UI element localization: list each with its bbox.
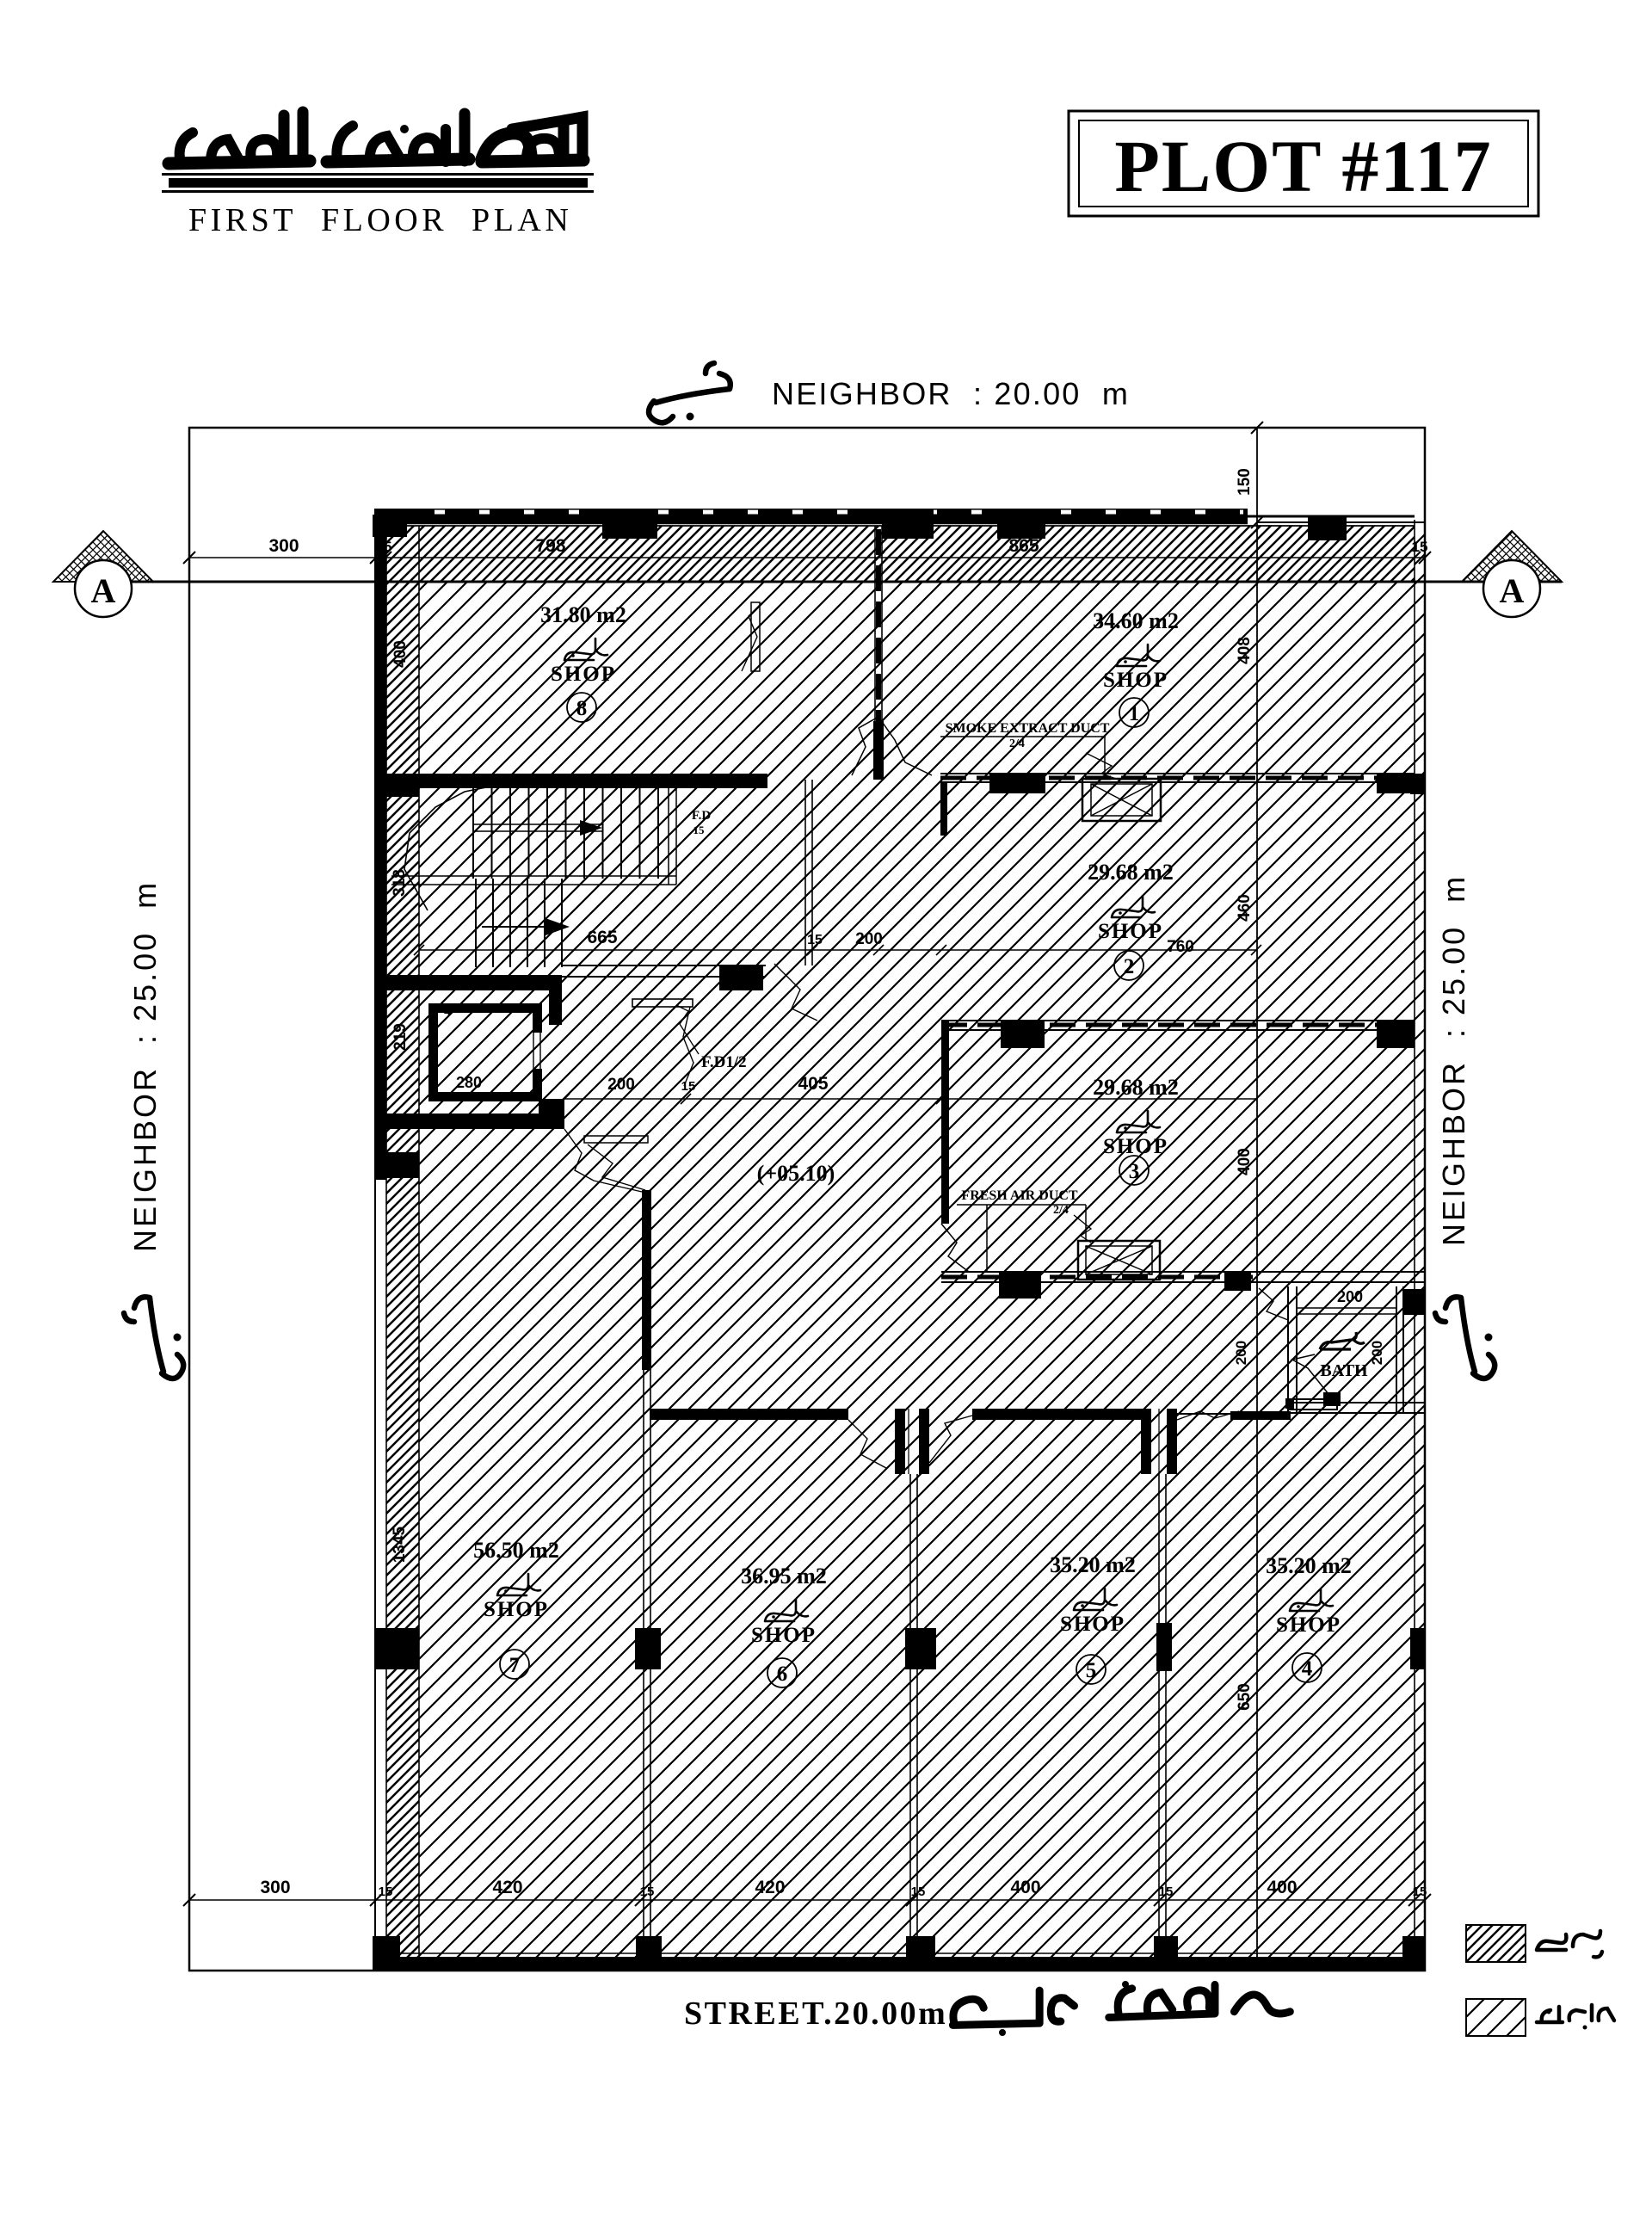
- svg-text:5: 5: [1086, 1659, 1097, 1682]
- svg-text:219: 219: [391, 1023, 410, 1051]
- svg-text:15: 15: [1413, 1885, 1427, 1899]
- svg-text:4: 4: [444, 1004, 451, 1018]
- svg-text:34.60 m2: 34.60 m2: [1093, 608, 1179, 633]
- svg-text:420: 420: [492, 1878, 522, 1897]
- svg-text:F.D: F.D: [692, 809, 712, 823]
- svg-text:200: 200: [1369, 1341, 1385, 1365]
- svg-text:865: 865: [1008, 536, 1039, 556]
- svg-text:300: 300: [260, 1878, 290, 1897]
- svg-text:300: 300: [268, 536, 299, 556]
- svg-text:35.20 m2: 35.20 m2: [1050, 1552, 1136, 1577]
- svg-text:36.95 m2: 36.95 m2: [741, 1564, 827, 1589]
- svg-text:200: 200: [1233, 1341, 1249, 1365]
- svg-text:SHOP: SHOP: [1276, 1613, 1341, 1637]
- svg-text:A: A: [91, 571, 116, 610]
- svg-text:1345: 1345: [391, 1526, 409, 1563]
- svg-text:FIRST FLOOR PLAN: FIRST FLOOR PLAN: [188, 202, 572, 238]
- svg-text:200: 200: [1337, 1288, 1363, 1305]
- svg-text:400: 400: [1010, 1878, 1040, 1897]
- svg-text:420: 420: [755, 1878, 785, 1897]
- svg-text:3: 3: [1129, 1160, 1140, 1183]
- svg-text:SHOP: SHOP: [1060, 1613, 1125, 1636]
- svg-text:2/4: 2/4: [1053, 1204, 1069, 1217]
- svg-text:2/4: 2/4: [1009, 737, 1025, 750]
- svg-text:NEIGHBOR : 20.00 m: NEIGHBOR : 20.00 m: [772, 376, 1130, 411]
- svg-text:SMOKE EXTRACT DUCT: SMOKE EXTRACT DUCT: [946, 721, 1110, 736]
- svg-text:29.68 m2: 29.68 m2: [1088, 860, 1174, 885]
- svg-text:6: 6: [777, 1663, 788, 1686]
- svg-text:SHOP: SHOP: [1098, 920, 1163, 943]
- svg-text:400: 400: [391, 640, 410, 668]
- svg-text:400: 400: [1267, 1878, 1297, 1897]
- svg-text:460: 460: [1236, 894, 1254, 922]
- svg-text:15: 15: [1159, 1885, 1174, 1899]
- svg-text:4: 4: [1302, 1657, 1313, 1681]
- svg-text:BATH: BATH: [1320, 1361, 1368, 1380]
- svg-text:8: 8: [576, 697, 588, 720]
- svg-text:280: 280: [456, 1074, 482, 1091]
- svg-text:STREET.20.00m: STREET.20.00m: [684, 1996, 947, 2032]
- svg-text:35.20 m2: 35.20 m2: [1266, 1553, 1352, 1578]
- svg-text:650: 650: [1236, 1683, 1254, 1711]
- svg-text:1: 1: [1129, 702, 1140, 725]
- svg-text:(+05.10): (+05.10): [757, 1161, 835, 1186]
- svg-text:200: 200: [855, 930, 883, 948]
- svg-text:150: 150: [1236, 468, 1254, 496]
- svg-text:NEIGHBOR : 25.00 m: NEIGHBOR : 25.00 m: [1436, 874, 1471, 1246]
- svg-text:PLOT #117: PLOT #117: [1114, 125, 1492, 207]
- svg-text:FRESH AIR DUCT: FRESH AIR DUCT: [961, 1188, 1077, 1203]
- svg-text:F.D1/2: F.D1/2: [701, 1053, 747, 1071]
- svg-text:A: A: [1500, 571, 1525, 610]
- svg-text:408: 408: [1236, 637, 1254, 664]
- svg-text:31.80 m2: 31.80 m2: [540, 602, 626, 627]
- svg-text:56.50 m2: 56.50 m2: [473, 1538, 559, 1563]
- svg-text:15: 15: [640, 1885, 655, 1899]
- svg-text:SHOP: SHOP: [484, 1598, 549, 1621]
- svg-text:318: 318: [391, 869, 409, 897]
- svg-text:400: 400: [1236, 1148, 1254, 1175]
- svg-text:SHOP: SHOP: [751, 1624, 817, 1647]
- svg-text:798: 798: [535, 536, 565, 556]
- svg-text:SHOP: SHOP: [1103, 1135, 1168, 1158]
- svg-text:15: 15: [807, 933, 823, 947]
- svg-text:7: 7: [509, 1654, 521, 1677]
- svg-text:15: 15: [911, 1885, 926, 1899]
- svg-text:665: 665: [587, 928, 617, 947]
- svg-text:SHOP: SHOP: [551, 663, 616, 686]
- svg-text:200: 200: [607, 1076, 635, 1094]
- svg-text:15: 15: [681, 1079, 696, 1094]
- svg-text:15: 15: [693, 824, 706, 836]
- svg-text:NEIGHBOR : 25.00 m: NEIGHBOR : 25.00 m: [127, 880, 163, 1252]
- svg-text:760: 760: [1167, 938, 1194, 956]
- svg-text:15: 15: [379, 1885, 393, 1899]
- svg-text:2: 2: [1124, 955, 1135, 978]
- svg-text:15: 15: [1412, 539, 1428, 555]
- svg-text:SHOP: SHOP: [1103, 669, 1168, 692]
- svg-text:405: 405: [798, 1074, 828, 1094]
- svg-text:29.68 m2: 29.68 m2: [1093, 1075, 1179, 1100]
